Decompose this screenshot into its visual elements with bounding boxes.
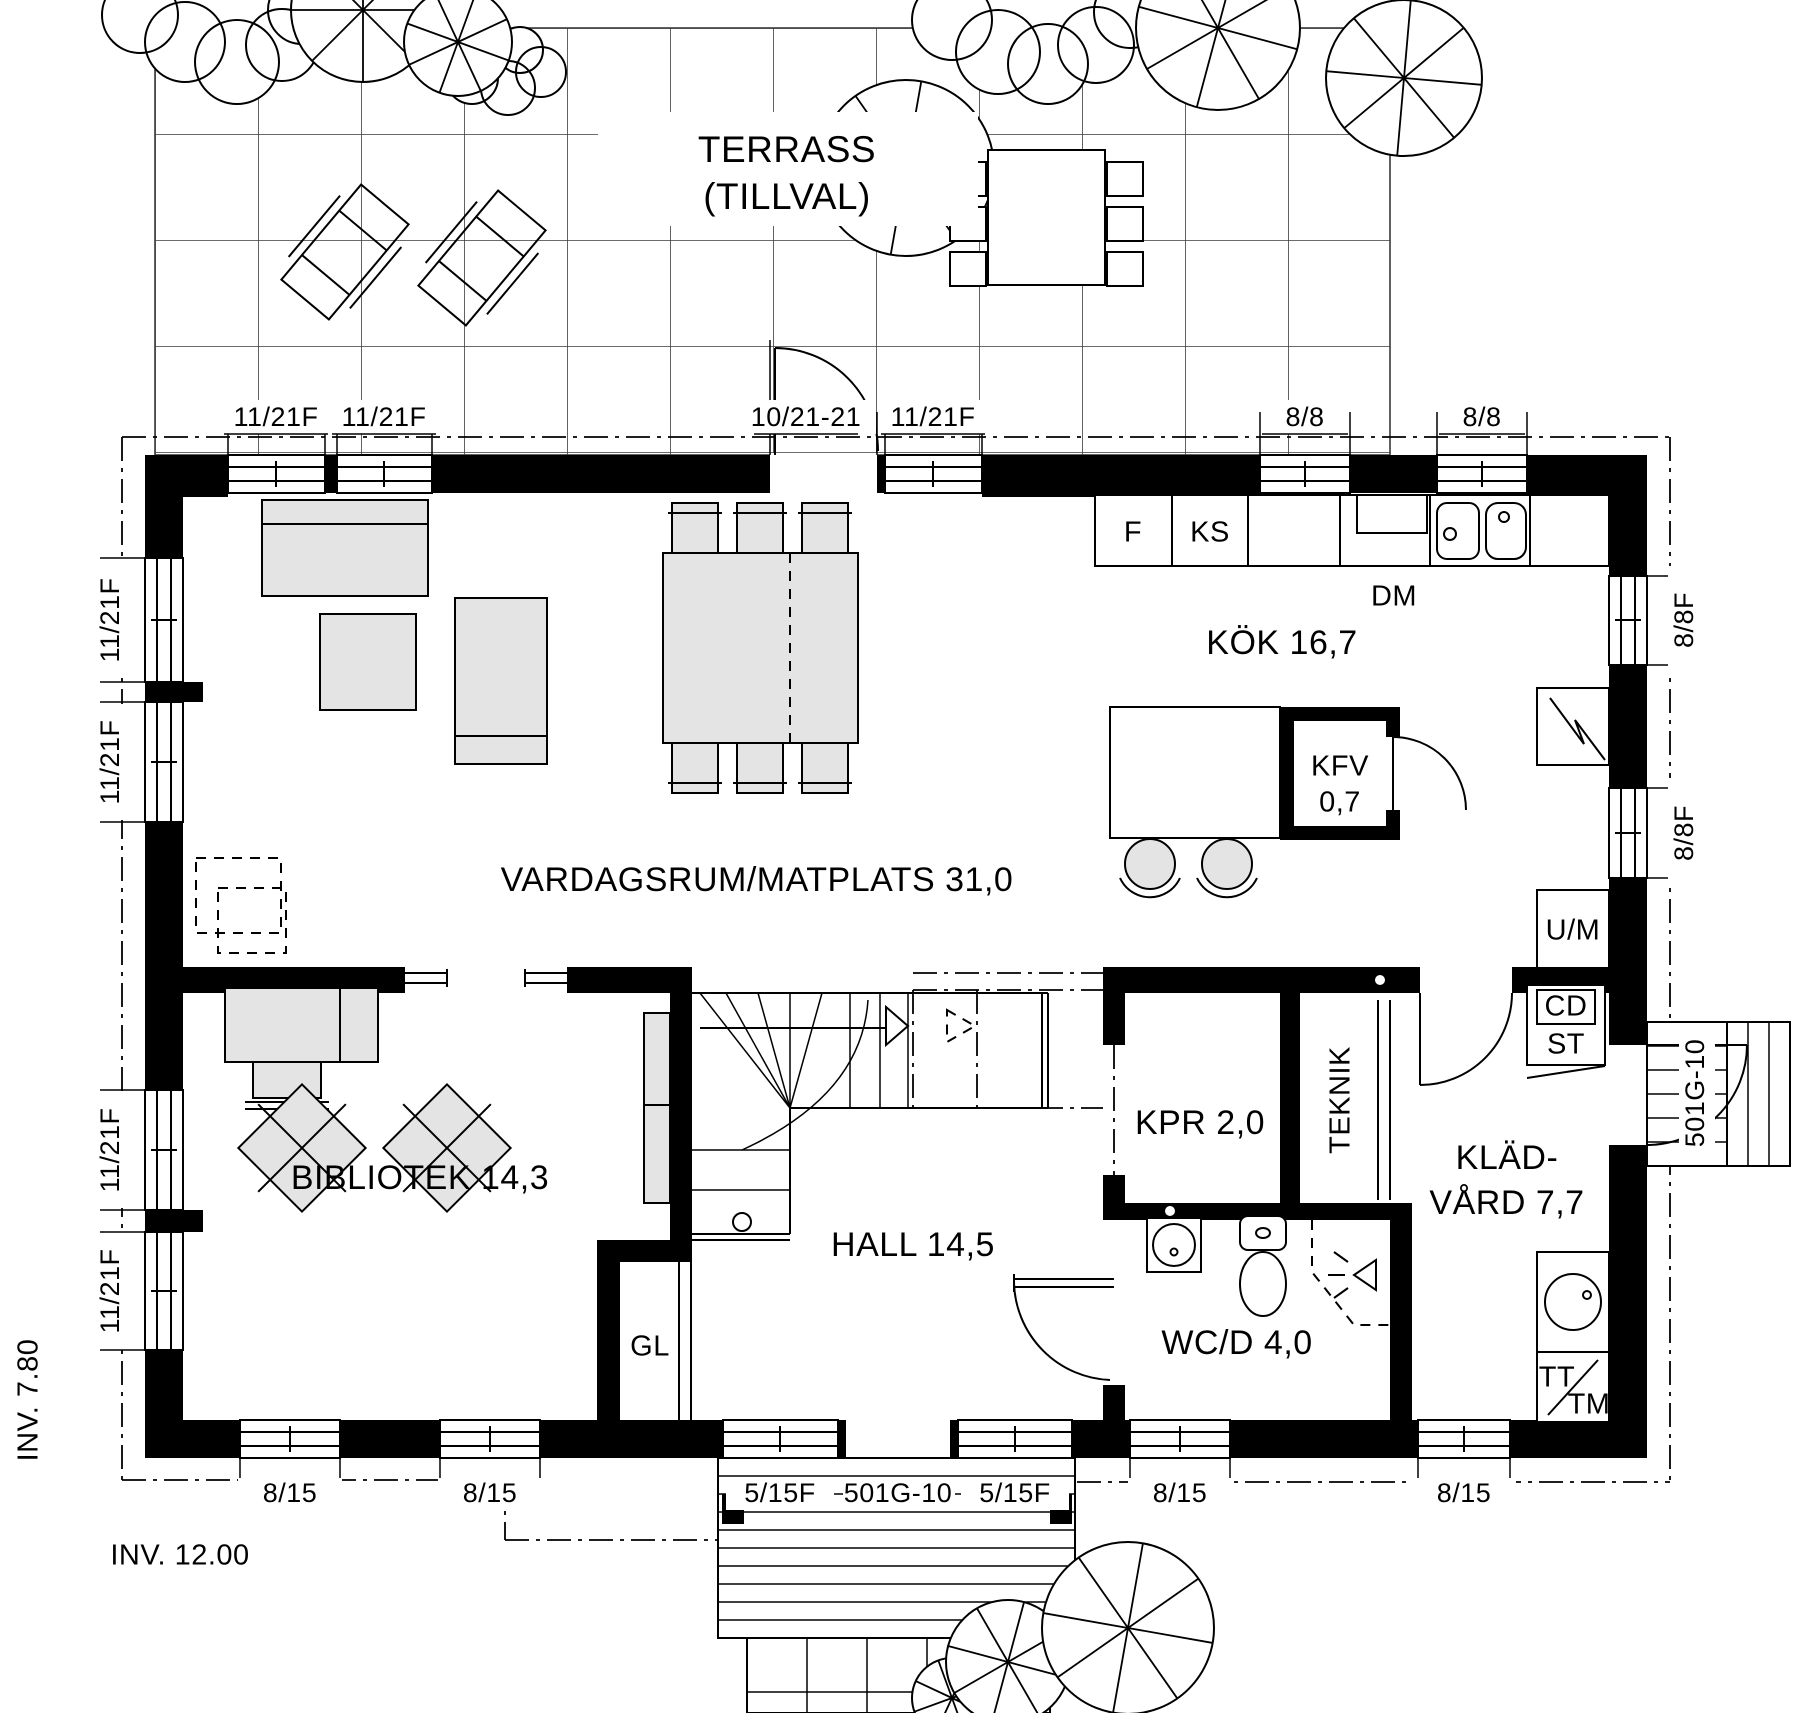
armchair <box>320 614 416 710</box>
window-label: 5/15F <box>979 1478 1051 1508</box>
terrace-label-line2: (TILLVAL) <box>703 176 871 217</box>
window-right-2 <box>1609 788 1647 878</box>
room-label-library: BIBLIOTEK 14,3 <box>291 1159 549 1197</box>
window-top-2 <box>337 455 432 493</box>
terrace-dining-set <box>950 150 1143 286</box>
window-label: 8/15 <box>1437 1478 1492 1508</box>
window-label: 5/15F <box>744 1478 816 1508</box>
window-label: 11/21F <box>95 719 125 804</box>
window-bottom-1 <box>240 1420 340 1458</box>
toilet-icon <box>1240 1216 1286 1316</box>
bar-stool-icon <box>1202 839 1252 889</box>
chaise <box>455 598 547 764</box>
appliance-label-st: ST <box>1547 1029 1585 1061</box>
tree-icon <box>1042 1542 1214 1713</box>
window-label: 8/8 <box>1285 402 1324 432</box>
window-label: 11/21F <box>233 402 318 432</box>
window-bottom-3 <box>723 1420 838 1458</box>
desk <box>225 988 378 1062</box>
room-label-kfv: KFV <box>1311 751 1369 783</box>
room-label-wc: WC/D 4,0 <box>1161 1324 1312 1362</box>
window-left-3 <box>145 1090 183 1210</box>
washbasin-icon <box>1147 1218 1201 1272</box>
building <box>145 348 1647 1558</box>
room-label-gl: GL <box>630 1331 670 1363</box>
window-label: 8/8 <box>1462 402 1501 432</box>
terrace-label-line1: TERRASS <box>698 129 876 170</box>
bar-stool-icon <box>1125 839 1175 889</box>
door-label: 501G-10 <box>844 1478 953 1508</box>
window-label: 8/8F <box>1669 592 1699 648</box>
door-label: 10/21-21 <box>751 402 862 432</box>
window-top-3 <box>885 455 982 493</box>
floor-plan-page: TERRASS (TILLVAL) <box>0 0 1816 1713</box>
window-bottom-5 <box>1130 1420 1230 1458</box>
room-label-kitchen: KÖK 16,7 <box>1206 624 1357 662</box>
window-label: 8/15 <box>263 1478 318 1508</box>
dimension-width: INV. 12.00 <box>110 1540 249 1572</box>
room-label-kfv-area: 0,7 <box>1319 787 1361 819</box>
dining-set <box>663 503 858 793</box>
room-label-teknik: TEKNIK <box>1325 1046 1357 1154</box>
dimension-depth: INV. 7.80 <box>13 1339 45 1462</box>
window-label: 11/21F <box>341 402 426 432</box>
window-label: 8/15 <box>463 1478 518 1508</box>
door-label: 501G-10 <box>1680 1039 1710 1148</box>
window-left-2 <box>145 702 183 822</box>
kitchen-cabinets <box>1095 495 1609 566</box>
window-left-1 <box>145 558 183 682</box>
window-bottom-6 <box>1418 1420 1510 1458</box>
window-left-4 <box>145 1232 183 1350</box>
tree-icon <box>404 0 512 96</box>
window-right-1 <box>1609 576 1647 665</box>
window-bottom-4 <box>958 1420 1072 1458</box>
room-label-kladvard1: KLÄD- <box>1456 1139 1559 1177</box>
room-label-living: VARDAGSRUM/MATPLATS 31,0 <box>501 861 1014 899</box>
appliance-label-dishwasher: DM <box>1371 581 1417 613</box>
window-label: 11/21F <box>890 402 975 432</box>
chimney-flue-icon <box>1537 688 1609 765</box>
window-label: 11/21F <box>95 1107 125 1192</box>
appliance-label-cd: CD <box>1545 991 1588 1023</box>
bookshelf <box>644 1013 670 1203</box>
window-top-1 <box>228 455 325 493</box>
window-label: 8/8F <box>1669 805 1699 861</box>
window-label: 11/21F <box>95 577 125 662</box>
appliance-label-um: U/M <box>1546 915 1601 947</box>
window-label: 8/15 <box>1153 1478 1208 1508</box>
appliance-label-tm: TM <box>1568 1389 1611 1421</box>
appliance-label-freezer: F <box>1124 517 1142 549</box>
window-bottom-2 <box>440 1420 540 1458</box>
appliance-label-fridge: KS <box>1190 517 1230 549</box>
floor-plan-drawing: TERRASS (TILLVAL) <box>0 0 1816 1713</box>
room-label-hall: HALL 14,5 <box>831 1226 995 1264</box>
window-label: 11/21F <box>95 1248 125 1333</box>
room-label-kladvard2: VÅRD 7,7 <box>1429 1184 1584 1222</box>
room-label-kpr: KPR 2,0 <box>1135 1104 1265 1142</box>
tree-icon <box>1326 0 1482 156</box>
sofa <box>262 500 428 596</box>
